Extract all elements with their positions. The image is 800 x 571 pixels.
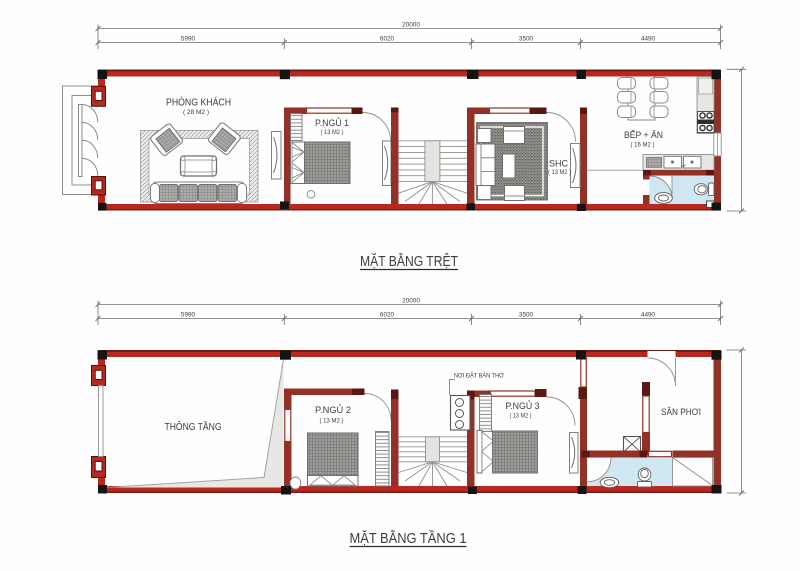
svg-text:20000: 20000 (402, 298, 420, 305)
svg-text:MẶT BẰNG TẦNG 1: MẶT BẰNG TẦNG 1 (350, 529, 467, 547)
svg-text:( 13 M2 ): ( 13 M2 ) (320, 418, 344, 425)
svg-text:4490: 4490 (641, 312, 656, 319)
svg-text:( 13 M2 ): ( 13 M2 ) (321, 129, 344, 136)
svg-text:6020: 6020 (380, 312, 395, 319)
svg-text:( 13 M2 ): ( 13 M2 ) (548, 169, 571, 176)
svg-text:P.NGỦ 2: P.NGỦ 2 (315, 404, 351, 416)
svg-text:5990: 5990 (181, 36, 196, 43)
svg-text:( 16 M2 ): ( 16 M2 ) (631, 142, 655, 149)
svg-text:3500: 3500 (519, 36, 534, 43)
svg-text:SÂN PHƠI: SÂN PHƠI (661, 407, 701, 418)
svg-text:5990: 5990 (181, 312, 196, 319)
svg-text:20000: 20000 (402, 22, 420, 29)
svg-text:SHC: SHC (549, 159, 568, 170)
svg-text:( 13 M2 ): ( 13 M2 ) (510, 413, 532, 420)
svg-text:4490: 4490 (641, 36, 656, 43)
svg-text:6020: 6020 (380, 36, 395, 43)
svg-text:BẾP + ĂN: BẾP + ĂN (624, 130, 663, 141)
svg-text:P.NGỦ 3: P.NGỦ 3 (506, 400, 540, 412)
svg-text:( 28 M2 ): ( 28 M2 ) (183, 109, 209, 116)
svg-text:MẶT BẰNG TRỆT: MẶT BẰNG TRỆT (360, 252, 458, 270)
svg-text:3500: 3500 (519, 312, 534, 319)
svg-text:NƠI ĐẶT BÀN THỜ: NƠI ĐẶT BÀN THỜ (454, 371, 504, 380)
svg-text:THÔNG TẦNG: THÔNG TẦNG (165, 422, 222, 433)
svg-text:PHÒNG KHÁCH: PHÒNG KHÁCH (166, 96, 231, 109)
svg-text:P.NGỦ 1: P.NGỦ 1 (315, 117, 349, 129)
